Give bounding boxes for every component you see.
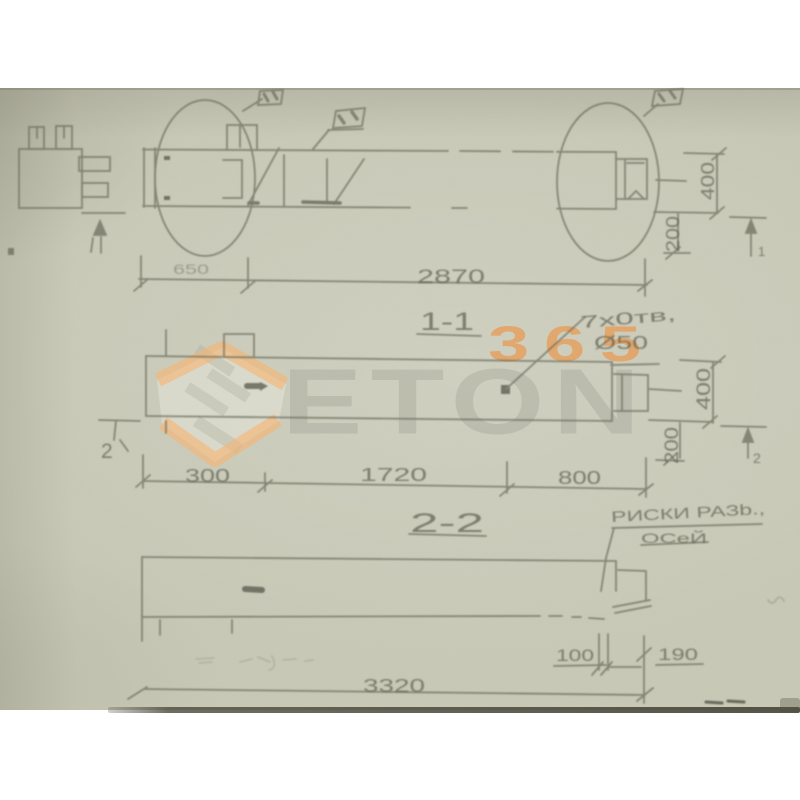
svg-text:РИСКИ РАЗb.,: РИСКИ РАЗb., — [611, 501, 766, 526]
svg-text:200: 200 — [663, 216, 683, 252]
svg-text:3320: 3320 — [363, 676, 425, 696]
svg-text:650: 650 — [173, 261, 209, 277]
svg-text:1: 1 — [758, 244, 765, 259]
svg-text:2: 2 — [101, 440, 113, 463]
svg-text:100: 100 — [556, 646, 594, 665]
svg-text:ОСеЙ: ОСеЙ — [641, 529, 707, 546]
svg-text:1720: 1720 — [360, 465, 427, 485]
svg-text:2870: 2870 — [417, 267, 485, 288]
svg-text:200: 200 — [662, 427, 683, 464]
svg-text:2-2: 2-2 — [410, 508, 484, 538]
svg-text:400: 400 — [694, 368, 715, 410]
svg-text:400: 400 — [698, 162, 718, 200]
svg-text:7x0тв,: 7x0тв, — [579, 305, 676, 332]
svg-text:2: 2 — [753, 450, 761, 466]
svg-text:190: 190 — [658, 645, 698, 664]
svg-text:Ø50: Ø50 — [594, 333, 648, 353]
svg-text:1-1: 1-1 — [420, 308, 474, 336]
svg-text:300: 300 — [185, 466, 230, 486]
svg-text:800: 800 — [558, 468, 601, 488]
